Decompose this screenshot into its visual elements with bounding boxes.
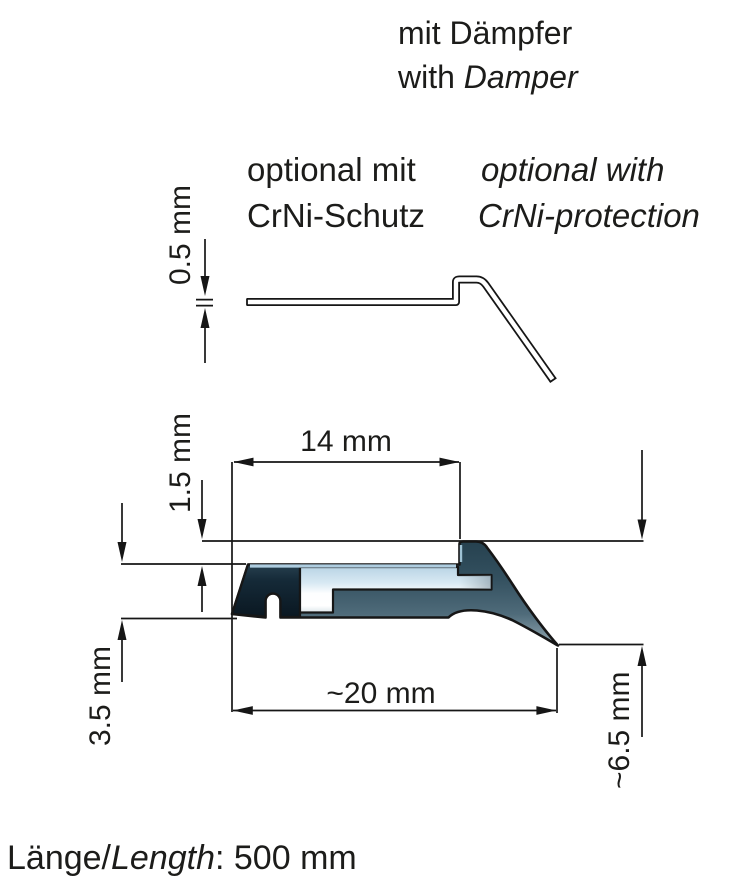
dim-14-arrow-left bbox=[234, 458, 254, 467]
optional-label-en-line2: CrNi-protection bbox=[478, 197, 700, 234]
dim-label-flat-top-width: 14 mm bbox=[300, 425, 392, 458]
damper-insert-tongue-shading bbox=[459, 576, 491, 590]
dim-35-arrow-up bbox=[118, 620, 127, 640]
profile-foot-block bbox=[232, 565, 300, 618]
dim-20-arrow-left bbox=[233, 706, 253, 715]
dim-label-body-height: 3.5 mm bbox=[84, 646, 117, 746]
optional-label-de-line1: optional mit bbox=[247, 151, 416, 188]
title-german: mit Dämpfer bbox=[398, 15, 573, 51]
crni-sheet-outline bbox=[247, 280, 553, 381]
crni-sheet-drawing bbox=[247, 280, 556, 383]
dim-label-overall-width: ~20 mm bbox=[326, 677, 435, 710]
dim-14-arrow-right bbox=[440, 458, 460, 467]
crni-sheet-core bbox=[247, 280, 553, 381]
dim-05-arrow-up bbox=[201, 308, 210, 328]
dim-15-arrow-up bbox=[198, 566, 207, 586]
length-note-value: : 500 mm bbox=[215, 839, 357, 877]
optional-label-de-line2: CrNi-Schutz bbox=[247, 197, 425, 234]
dim-label-sheet-thickness: 0.5 mm bbox=[164, 185, 197, 285]
dim-65-arrow-down bbox=[638, 520, 647, 540]
dim-label-lip-height: 1.5 mm bbox=[164, 413, 197, 513]
dim-20-arrow-right bbox=[536, 706, 556, 715]
dim-label-overall-drop: ~6.5 mm bbox=[603, 671, 636, 789]
dim-15-arrow-down bbox=[198, 519, 207, 539]
dim-65-arrow-up bbox=[638, 646, 647, 666]
length-note: Länge/Length: 500 mm bbox=[7, 839, 357, 877]
optional-label-en-line1: optional with bbox=[481, 151, 664, 188]
title-english-prefix: with bbox=[397, 59, 464, 95]
dim-05-extension-ticks bbox=[196, 300, 213, 306]
title-english-italic: Damper bbox=[464, 59, 579, 95]
length-note-en-italic: Length bbox=[111, 839, 215, 877]
labels: mit Dämpfer with Damper optional mit CrN… bbox=[7, 15, 700, 877]
technical-drawing-page: mit Dämpfer with Damper optional mit CrN… bbox=[0, 0, 746, 884]
dim-35-arrow-down bbox=[118, 542, 127, 562]
dim-05-arrow-down bbox=[201, 276, 210, 296]
length-note-de: Länge/ bbox=[7, 839, 112, 877]
seal-profile-drawing bbox=[232, 542, 558, 646]
seal-profile-diagram: mit Dämpfer with Damper optional mit CrN… bbox=[0, 0, 746, 884]
title-english: with Damper bbox=[397, 59, 579, 95]
